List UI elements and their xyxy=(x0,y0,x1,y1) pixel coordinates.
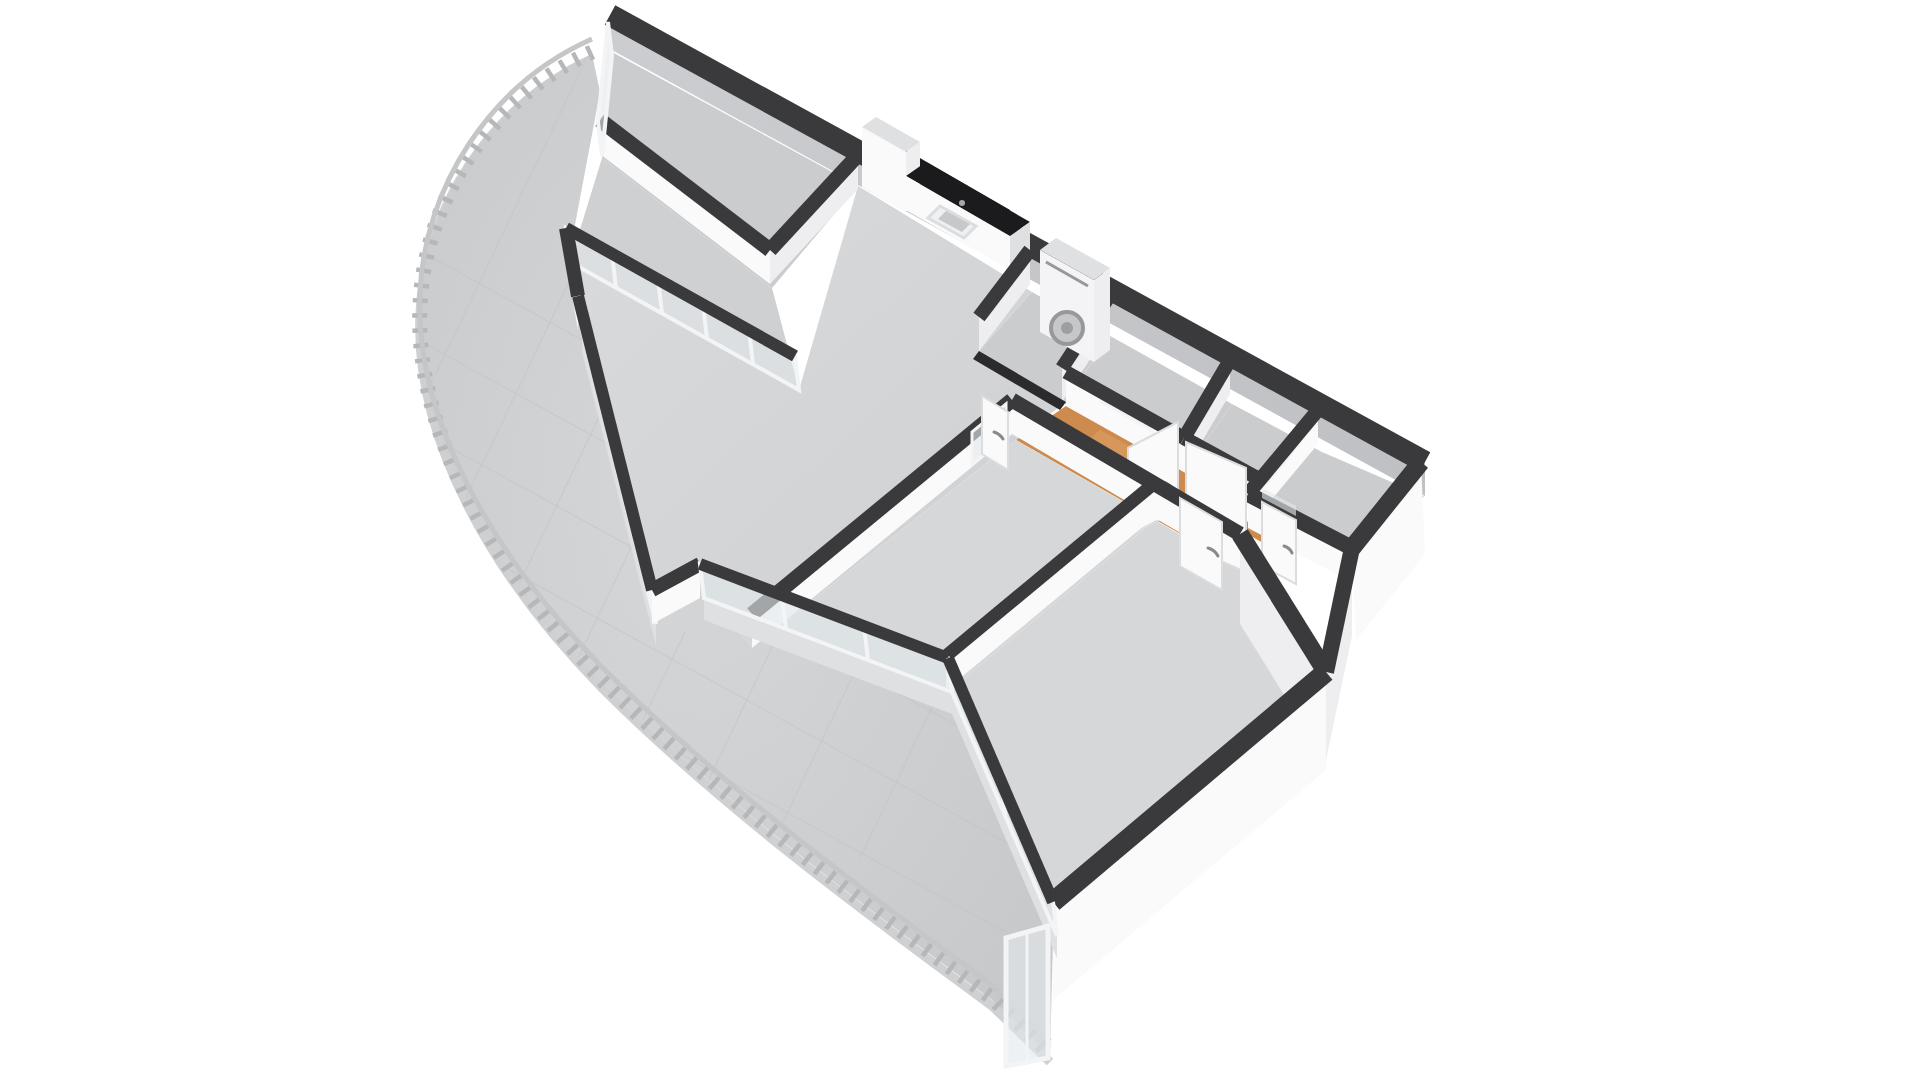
floorplan-render-stage xyxy=(0,0,1920,1080)
washer-side xyxy=(1094,268,1110,362)
washer-door-hub xyxy=(1061,322,1073,334)
balcony-end-glass-door xyxy=(1006,926,1048,1066)
floorplan-3d-svg xyxy=(0,0,1920,1080)
